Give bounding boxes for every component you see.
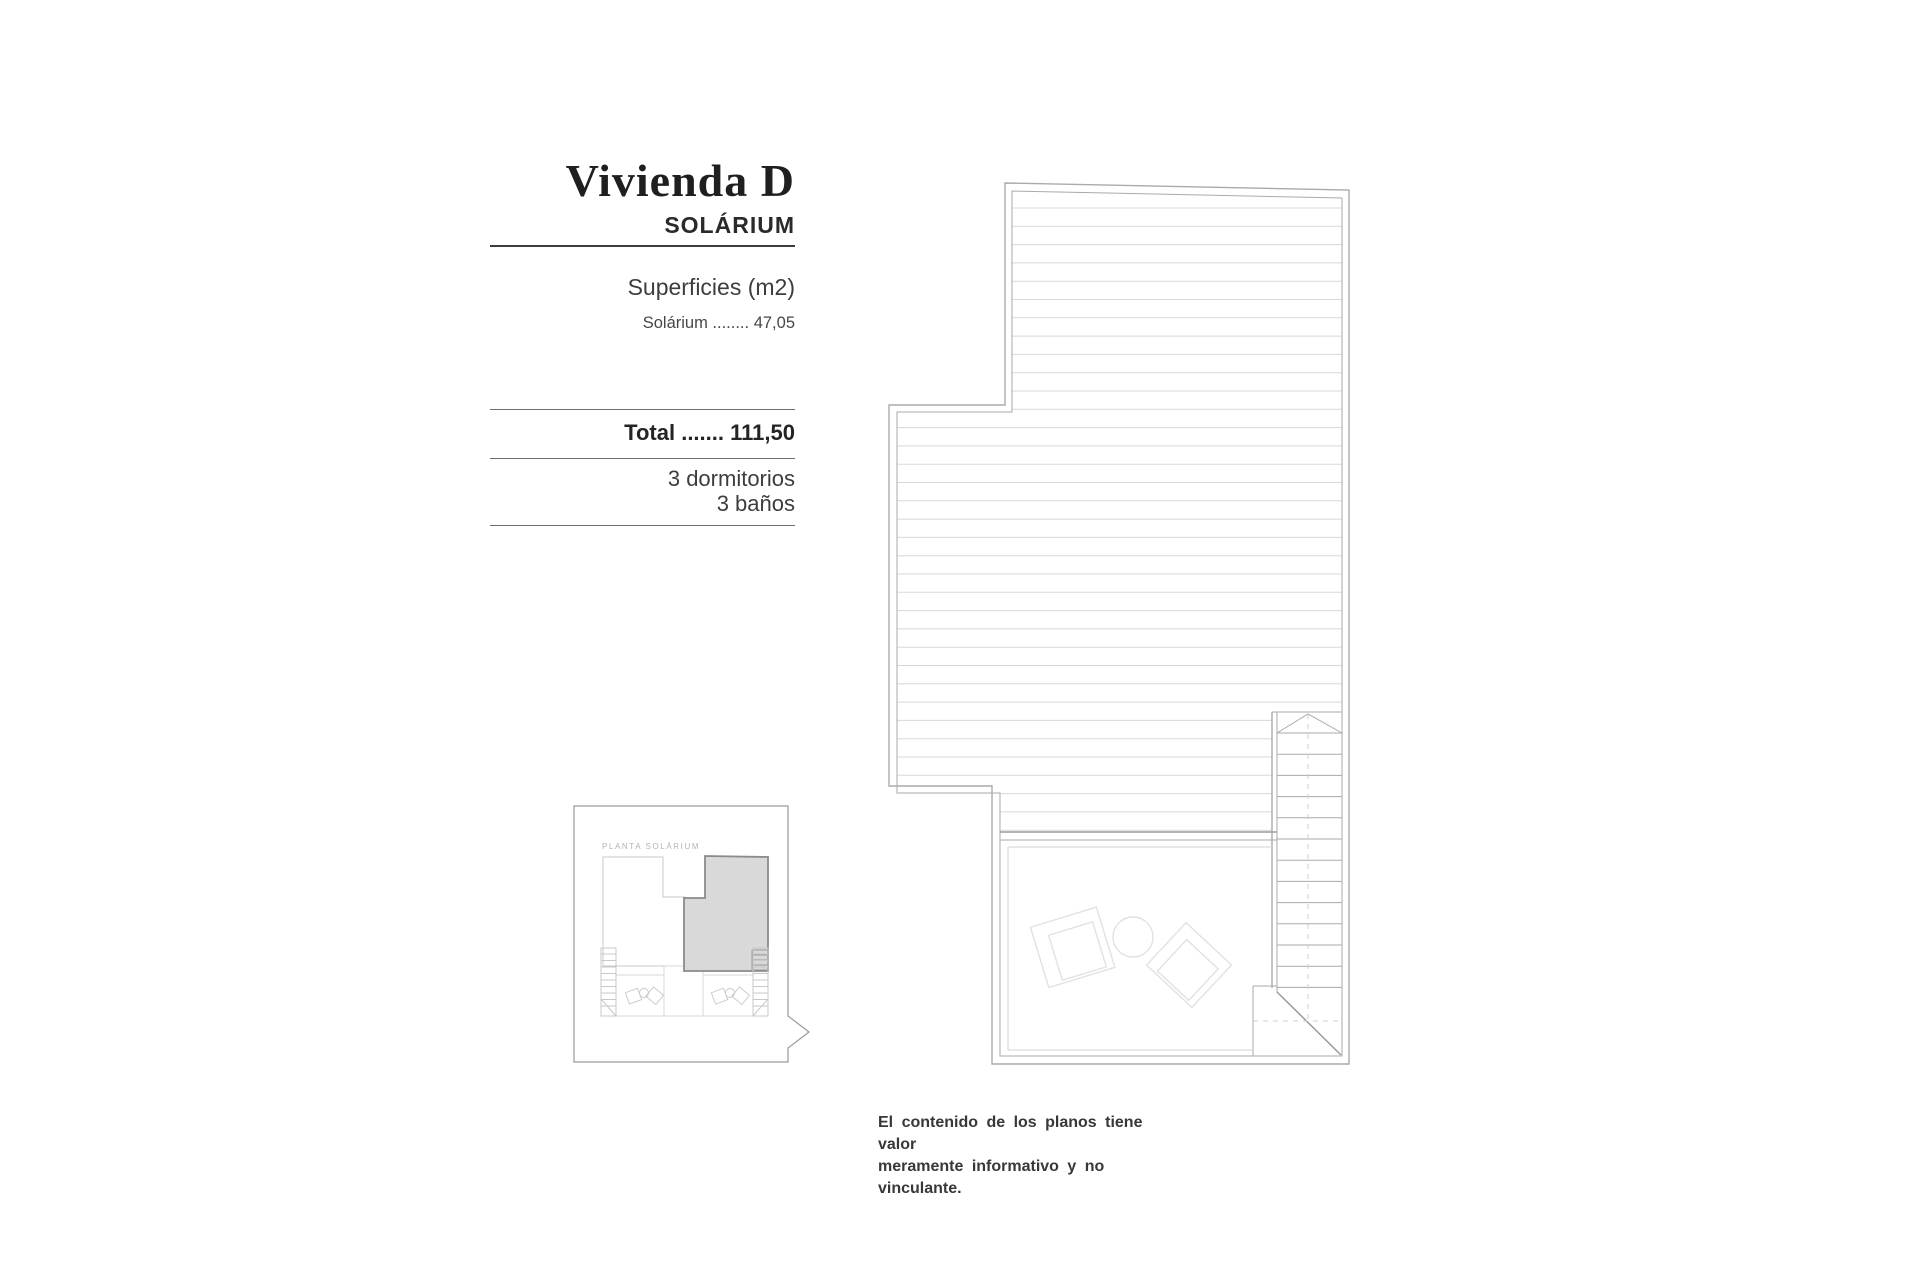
deck-outline	[889, 183, 1349, 1064]
deck-inner-outline	[897, 191, 1342, 1056]
stair-direction-gable	[1277, 714, 1342, 733]
disclaimer: El contenido de los planos tiene valor m…	[878, 1112, 1168, 1200]
lower-terrace	[1008, 847, 1272, 1050]
disclaimer-line-2: meramente informativo y no vinculante.	[878, 1156, 1168, 1200]
main-floor-plan	[889, 183, 1349, 1064]
furniture-armchair-left	[1030, 907, 1114, 987]
stair-landing	[1253, 986, 1342, 1056]
stair-treads	[1277, 733, 1342, 987]
disclaimer-line-1: El contenido de los planos tiene valor	[878, 1112, 1168, 1156]
furniture-round-table	[1113, 917, 1153, 957]
deck-hatch	[897, 208, 1342, 830]
key-plan-label: PLANTA SOLÁRIUM	[602, 842, 700, 851]
landing-diagonal	[1277, 992, 1341, 1055]
staircase	[1272, 712, 1342, 1021]
furniture-armchair-right	[1147, 923, 1232, 1008]
plan-drawing-layer	[0, 0, 1920, 1280]
